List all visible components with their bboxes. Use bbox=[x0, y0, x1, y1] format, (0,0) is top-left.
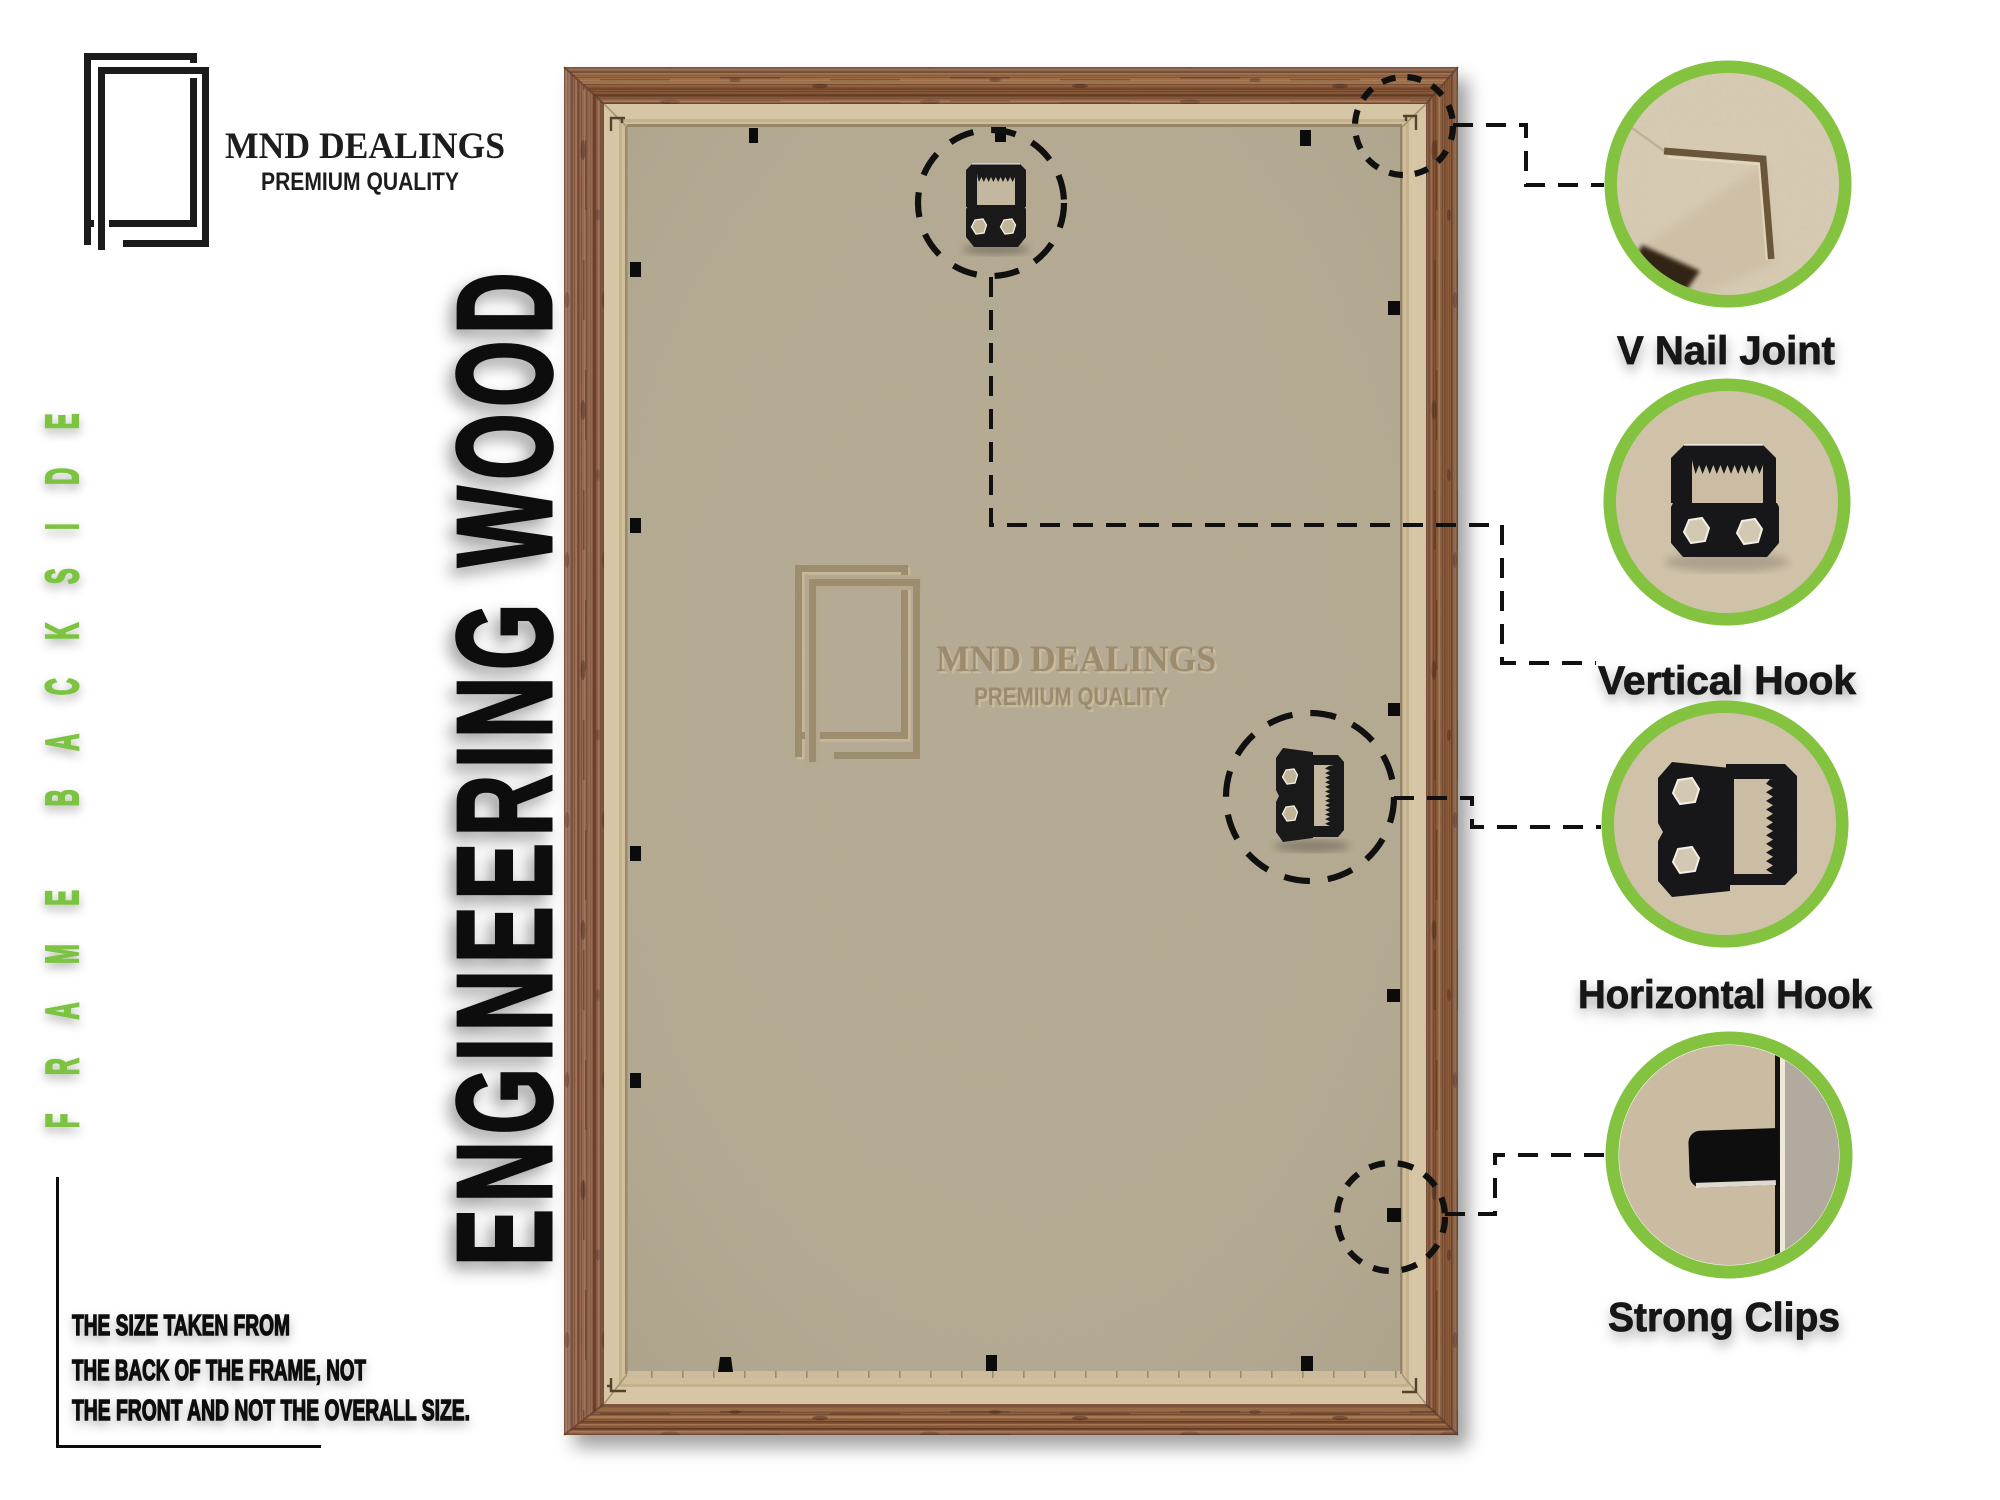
svg-text:Vertical Hook: Vertical Hook bbox=[1598, 659, 1857, 703]
svg-text:FRAME BACKSIDE: FRAME BACKSIDE bbox=[36, 375, 88, 1128]
svg-text:V Nail Joint: V Nail Joint bbox=[1617, 329, 1835, 373]
svg-text:Strong Clips: Strong Clips bbox=[1608, 1294, 1840, 1340]
svg-text:THE BACK OF THE FRAME, NOT: THE BACK OF THE FRAME, NOT bbox=[72, 1355, 366, 1387]
svg-text:THE SIZE TAKEN FROM: THE SIZE TAKEN FROM bbox=[72, 1310, 290, 1342]
svg-text:MND DEALINGS: MND DEALINGS bbox=[936, 639, 1216, 680]
svg-text:PREMIUM QUALITY: PREMIUM QUALITY bbox=[261, 168, 459, 196]
svg-text:PREMIUM QUALITY: PREMIUM QUALITY bbox=[974, 683, 1168, 711]
svg-text:MND DEALINGS: MND DEALINGS bbox=[225, 126, 505, 167]
svg-text:THE FRONT AND NOT THE OVERALL: THE FRONT AND NOT THE OVERALL SIZE. bbox=[72, 1395, 470, 1427]
svg-text:ENGINEERING WOOD: ENGINEERING WOOD bbox=[429, 266, 580, 1266]
svg-text:Horizontal Hook: Horizontal Hook bbox=[1578, 973, 1873, 1017]
